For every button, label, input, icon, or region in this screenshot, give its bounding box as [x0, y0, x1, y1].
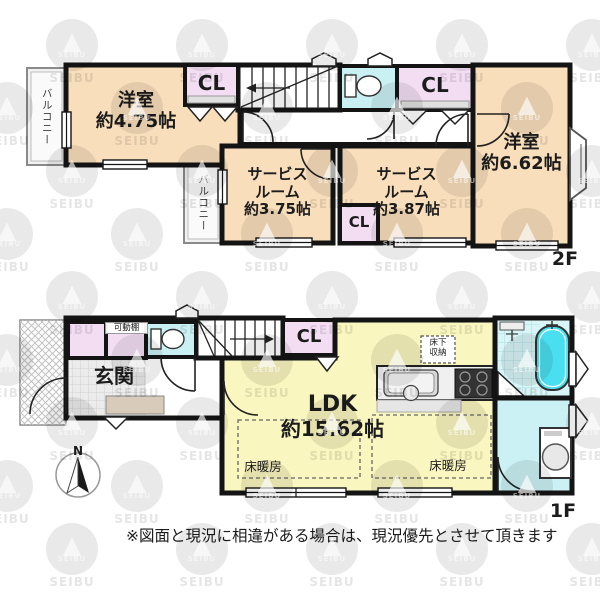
disclaimer-text: ※図面と現況に相違がある場合は、現況優先とさせて頂きます	[126, 527, 596, 545]
bathroom	[495, 318, 572, 398]
service-387-label: サービス ルーム 約3.87帖	[340, 166, 473, 219]
compass	[56, 453, 100, 497]
closet-2f-right-label: CL	[397, 74, 473, 98]
bath-counter	[500, 322, 524, 330]
floor2-badge: 2F	[545, 248, 585, 270]
floorplan-canvas: バルコニー バルコニー 洋室 約4.75帖 CL CL 洋室 約6.62帖 サー…	[0, 0, 600, 600]
balcony-middle-label: バルコニー	[184, 163, 222, 243]
closet-1f-label: CL	[283, 326, 335, 347]
service-375-label: サービス ルーム 約3.75帖	[222, 166, 333, 219]
closet-shelf-right	[401, 101, 469, 108]
washroom	[495, 398, 572, 493]
entrance-step	[106, 396, 164, 414]
floor-heating-right-label: 床暖房	[422, 459, 474, 474]
toilet-2f-fixture	[345, 75, 381, 97]
floor-heating-left-label: 床暖房	[237, 460, 289, 475]
vent-icon	[176, 305, 198, 318]
ldk-label: LDK 約15.62帖	[255, 392, 410, 442]
closet-2f-left-label: CL	[185, 72, 238, 96]
movable-shelf-label: 可動棚	[105, 322, 148, 334]
vent-icon	[312, 53, 336, 66]
vent-icon	[368, 53, 392, 66]
bay-window	[570, 128, 586, 200]
entrance-label: 玄関	[78, 365, 150, 389]
closet-1f-left	[68, 322, 106, 358]
bedroom-662-label: 洋室 約6.62帖	[473, 132, 570, 174]
toilet-1f-fixture	[151, 329, 184, 349]
closet-2f-small-label: CL	[340, 214, 378, 232]
kitchen-stove	[455, 369, 492, 398]
entrance-porch	[20, 320, 66, 425]
floor1-badge: 1F	[543, 500, 583, 522]
bedroom-475-label: 洋室 約4.75帖	[66, 90, 206, 132]
entrance-door-triangle	[104, 417, 128, 429]
balcony-left-label: バルコニー	[27, 68, 66, 165]
compass-n-label: N	[70, 444, 86, 458]
underfloor-label: 床下 収納	[419, 338, 457, 358]
